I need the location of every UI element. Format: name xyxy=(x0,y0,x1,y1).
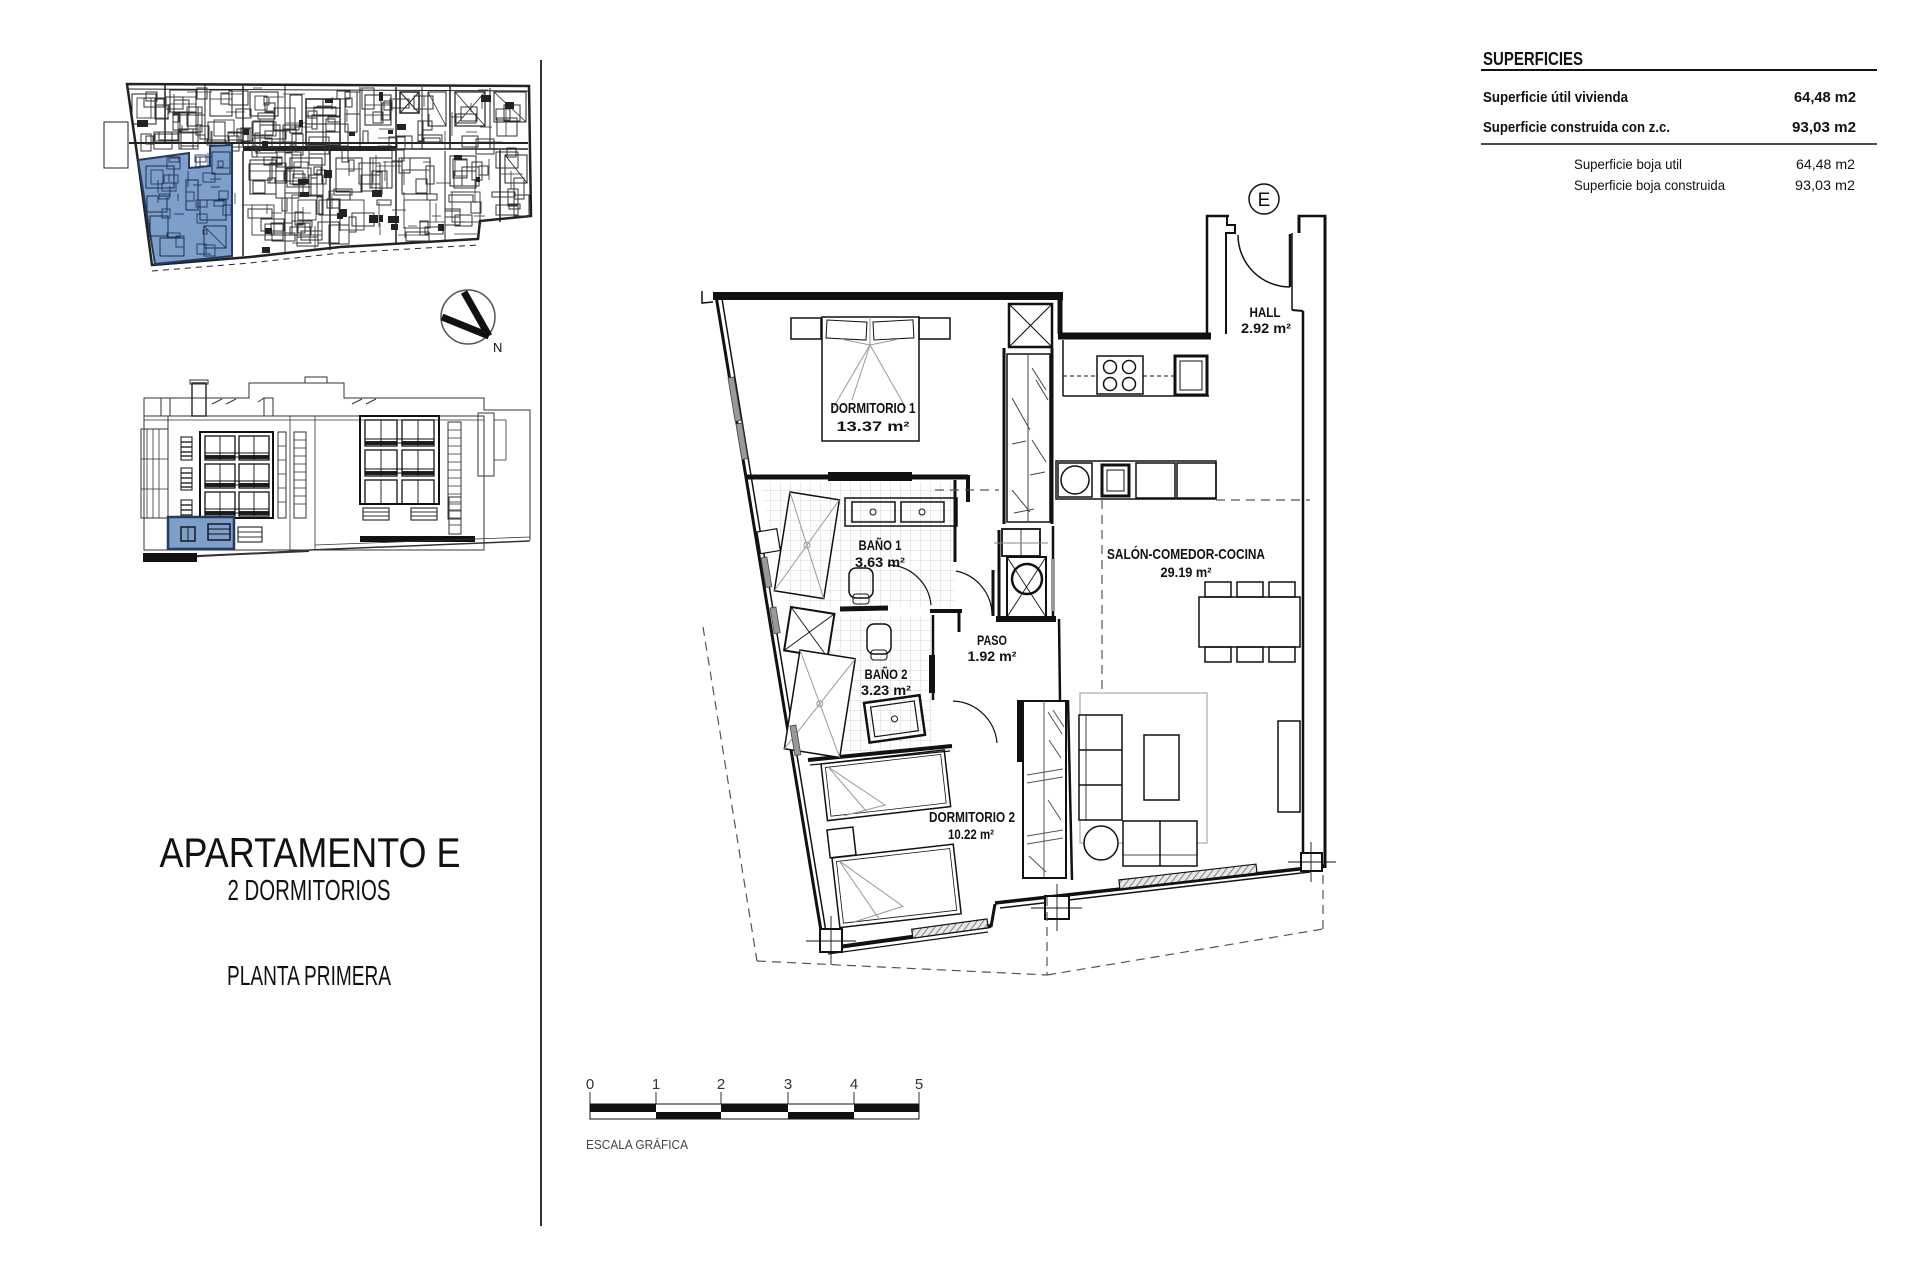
svg-text:10.22 m²: 10.22 m² xyxy=(948,826,994,842)
svg-text:64,48 m2: 64,48 m2 xyxy=(1794,89,1856,106)
svg-text:93,03 m2: 93,03 m2 xyxy=(1792,119,1856,136)
svg-text:SALÓN-COMEDOR-COCINA: SALÓN-COMEDOR-COCINA xyxy=(1107,545,1265,563)
svg-text:APARTAMENTO E: APARTAMENTO E xyxy=(160,829,461,876)
svg-text:1: 1 xyxy=(652,1076,660,1093)
svg-text:Superficie construida con z.c.: Superficie construida con z.c. xyxy=(1483,119,1670,136)
svg-text:3: 3 xyxy=(784,1076,792,1093)
svg-text:5: 5 xyxy=(915,1076,923,1093)
svg-text:PLANTA PRIMERA: PLANTA PRIMERA xyxy=(227,960,391,991)
svg-text:DORMITORIO 2: DORMITORIO 2 xyxy=(929,809,1015,826)
svg-text:E: E xyxy=(1258,190,1271,211)
svg-text:2: 2 xyxy=(717,1076,725,1093)
svg-text:29.19 m²: 29.19 m² xyxy=(1161,564,1212,580)
svg-text:ESCALA GRÁFICA: ESCALA GRÁFICA xyxy=(586,1137,688,1152)
svg-text:Superficie útil vivienda: Superficie útil vivienda xyxy=(1483,89,1629,106)
svg-text:3.63 m²: 3.63 m² xyxy=(855,554,905,570)
svg-text:N: N xyxy=(493,340,502,355)
svg-text:4: 4 xyxy=(850,1076,858,1093)
svg-text:1.92 m²: 1.92 m² xyxy=(968,648,1017,664)
svg-text:SUPERFICIES: SUPERFICIES xyxy=(1483,49,1583,69)
svg-text:Superficie boja construida: Superficie boja construida xyxy=(1574,177,1725,193)
svg-text:3.23 m²: 3.23 m² xyxy=(861,682,911,698)
svg-text:2 DORMITORIOS: 2 DORMITORIOS xyxy=(228,875,391,907)
svg-text:13.37 m²: 13.37 m² xyxy=(837,418,910,434)
svg-text:0: 0 xyxy=(586,1076,594,1093)
svg-text:64,48 m2: 64,48 m2 xyxy=(1796,156,1855,172)
svg-text:2.92 m²: 2.92 m² xyxy=(1241,320,1291,336)
svg-text:Superficie boja util: Superficie boja util xyxy=(1574,156,1682,172)
svg-text:BAÑO 1: BAÑO 1 xyxy=(859,536,902,553)
svg-text:DORMITORIO 1: DORMITORIO 1 xyxy=(831,400,916,417)
svg-text:PASO: PASO xyxy=(977,632,1007,648)
svg-text:93,03 m2: 93,03 m2 xyxy=(1795,177,1855,193)
svg-text:BAÑO 2: BAÑO 2 xyxy=(865,665,908,682)
svg-text:HALL: HALL xyxy=(1250,304,1281,320)
